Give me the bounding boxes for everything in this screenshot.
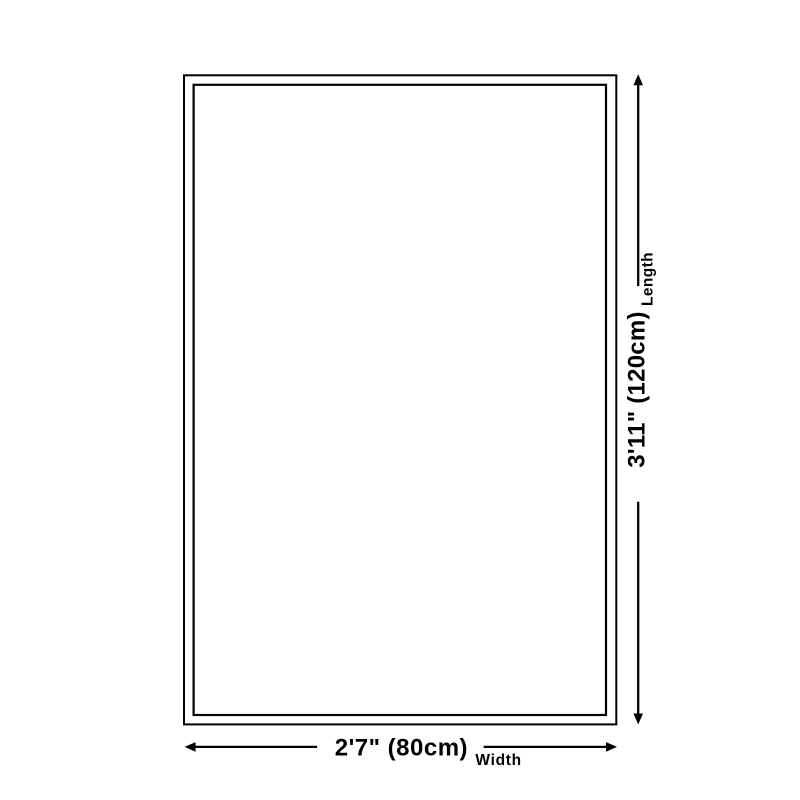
svg-text:2'7" (80cm): 2'7" (80cm) <box>335 734 468 761</box>
svg-text:Length: Length <box>640 252 657 306</box>
svg-text:Width: Width <box>475 752 521 769</box>
svg-text:3'11" (120cm): 3'11" (120cm) <box>624 311 651 467</box>
